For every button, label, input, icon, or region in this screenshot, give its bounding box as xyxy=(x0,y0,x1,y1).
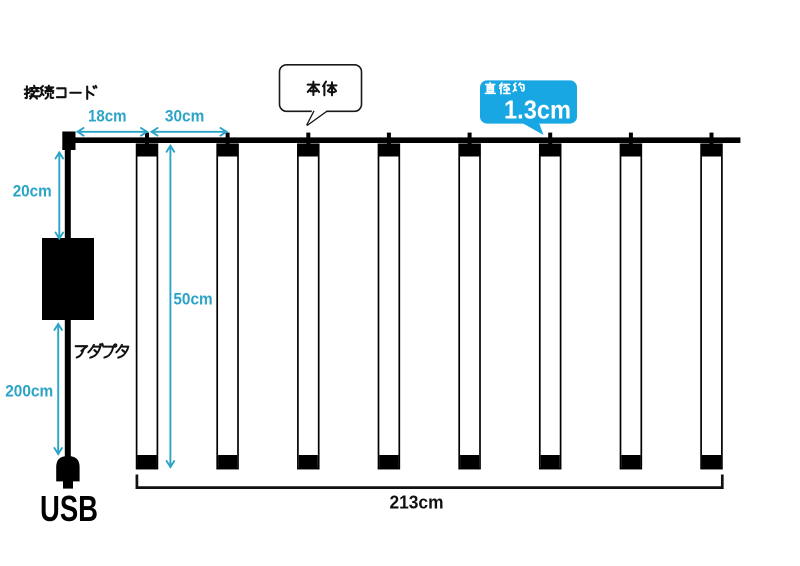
svg-text:USB: USB xyxy=(40,488,98,529)
svg-text:18cm: 18cm xyxy=(88,107,127,125)
svg-text:30cm: 30cm xyxy=(165,107,204,125)
svg-text:1.3cm: 1.3cm xyxy=(504,95,571,125)
svg-text:50cm: 50cm xyxy=(173,290,212,308)
svg-text:200cm: 200cm xyxy=(5,382,53,400)
svg-text:20cm: 20cm xyxy=(13,182,52,200)
svg-text:213cm: 213cm xyxy=(390,493,444,513)
